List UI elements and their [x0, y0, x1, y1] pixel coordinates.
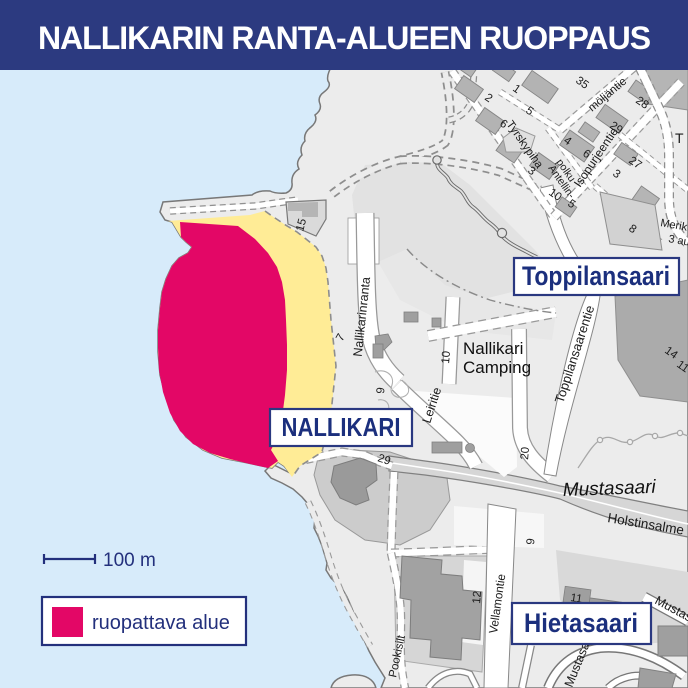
svg-text:100 m: 100 m	[103, 550, 156, 571]
svg-text:Camping: Camping	[463, 358, 531, 377]
svg-text:9: 9	[525, 538, 538, 545]
svg-text:Nallikari: Nallikari	[463, 339, 523, 358]
svg-text:Toppilansaari: Toppilansaari	[522, 261, 670, 291]
svg-text:20: 20	[519, 446, 532, 460]
svg-text:12: 12	[471, 590, 484, 604]
svg-text:NALLIKARI: NALLIKARI	[282, 412, 401, 442]
svg-text:ruopattava alue: ruopattava alue	[92, 612, 230, 634]
svg-text:9: 9	[375, 387, 388, 394]
svg-text:T: T	[675, 130, 684, 146]
svg-text:10: 10	[440, 350, 453, 364]
svg-text:Mustasaari: Mustasaari	[562, 477, 656, 501]
svg-text:Hietasaari: Hietasaari	[524, 608, 638, 638]
